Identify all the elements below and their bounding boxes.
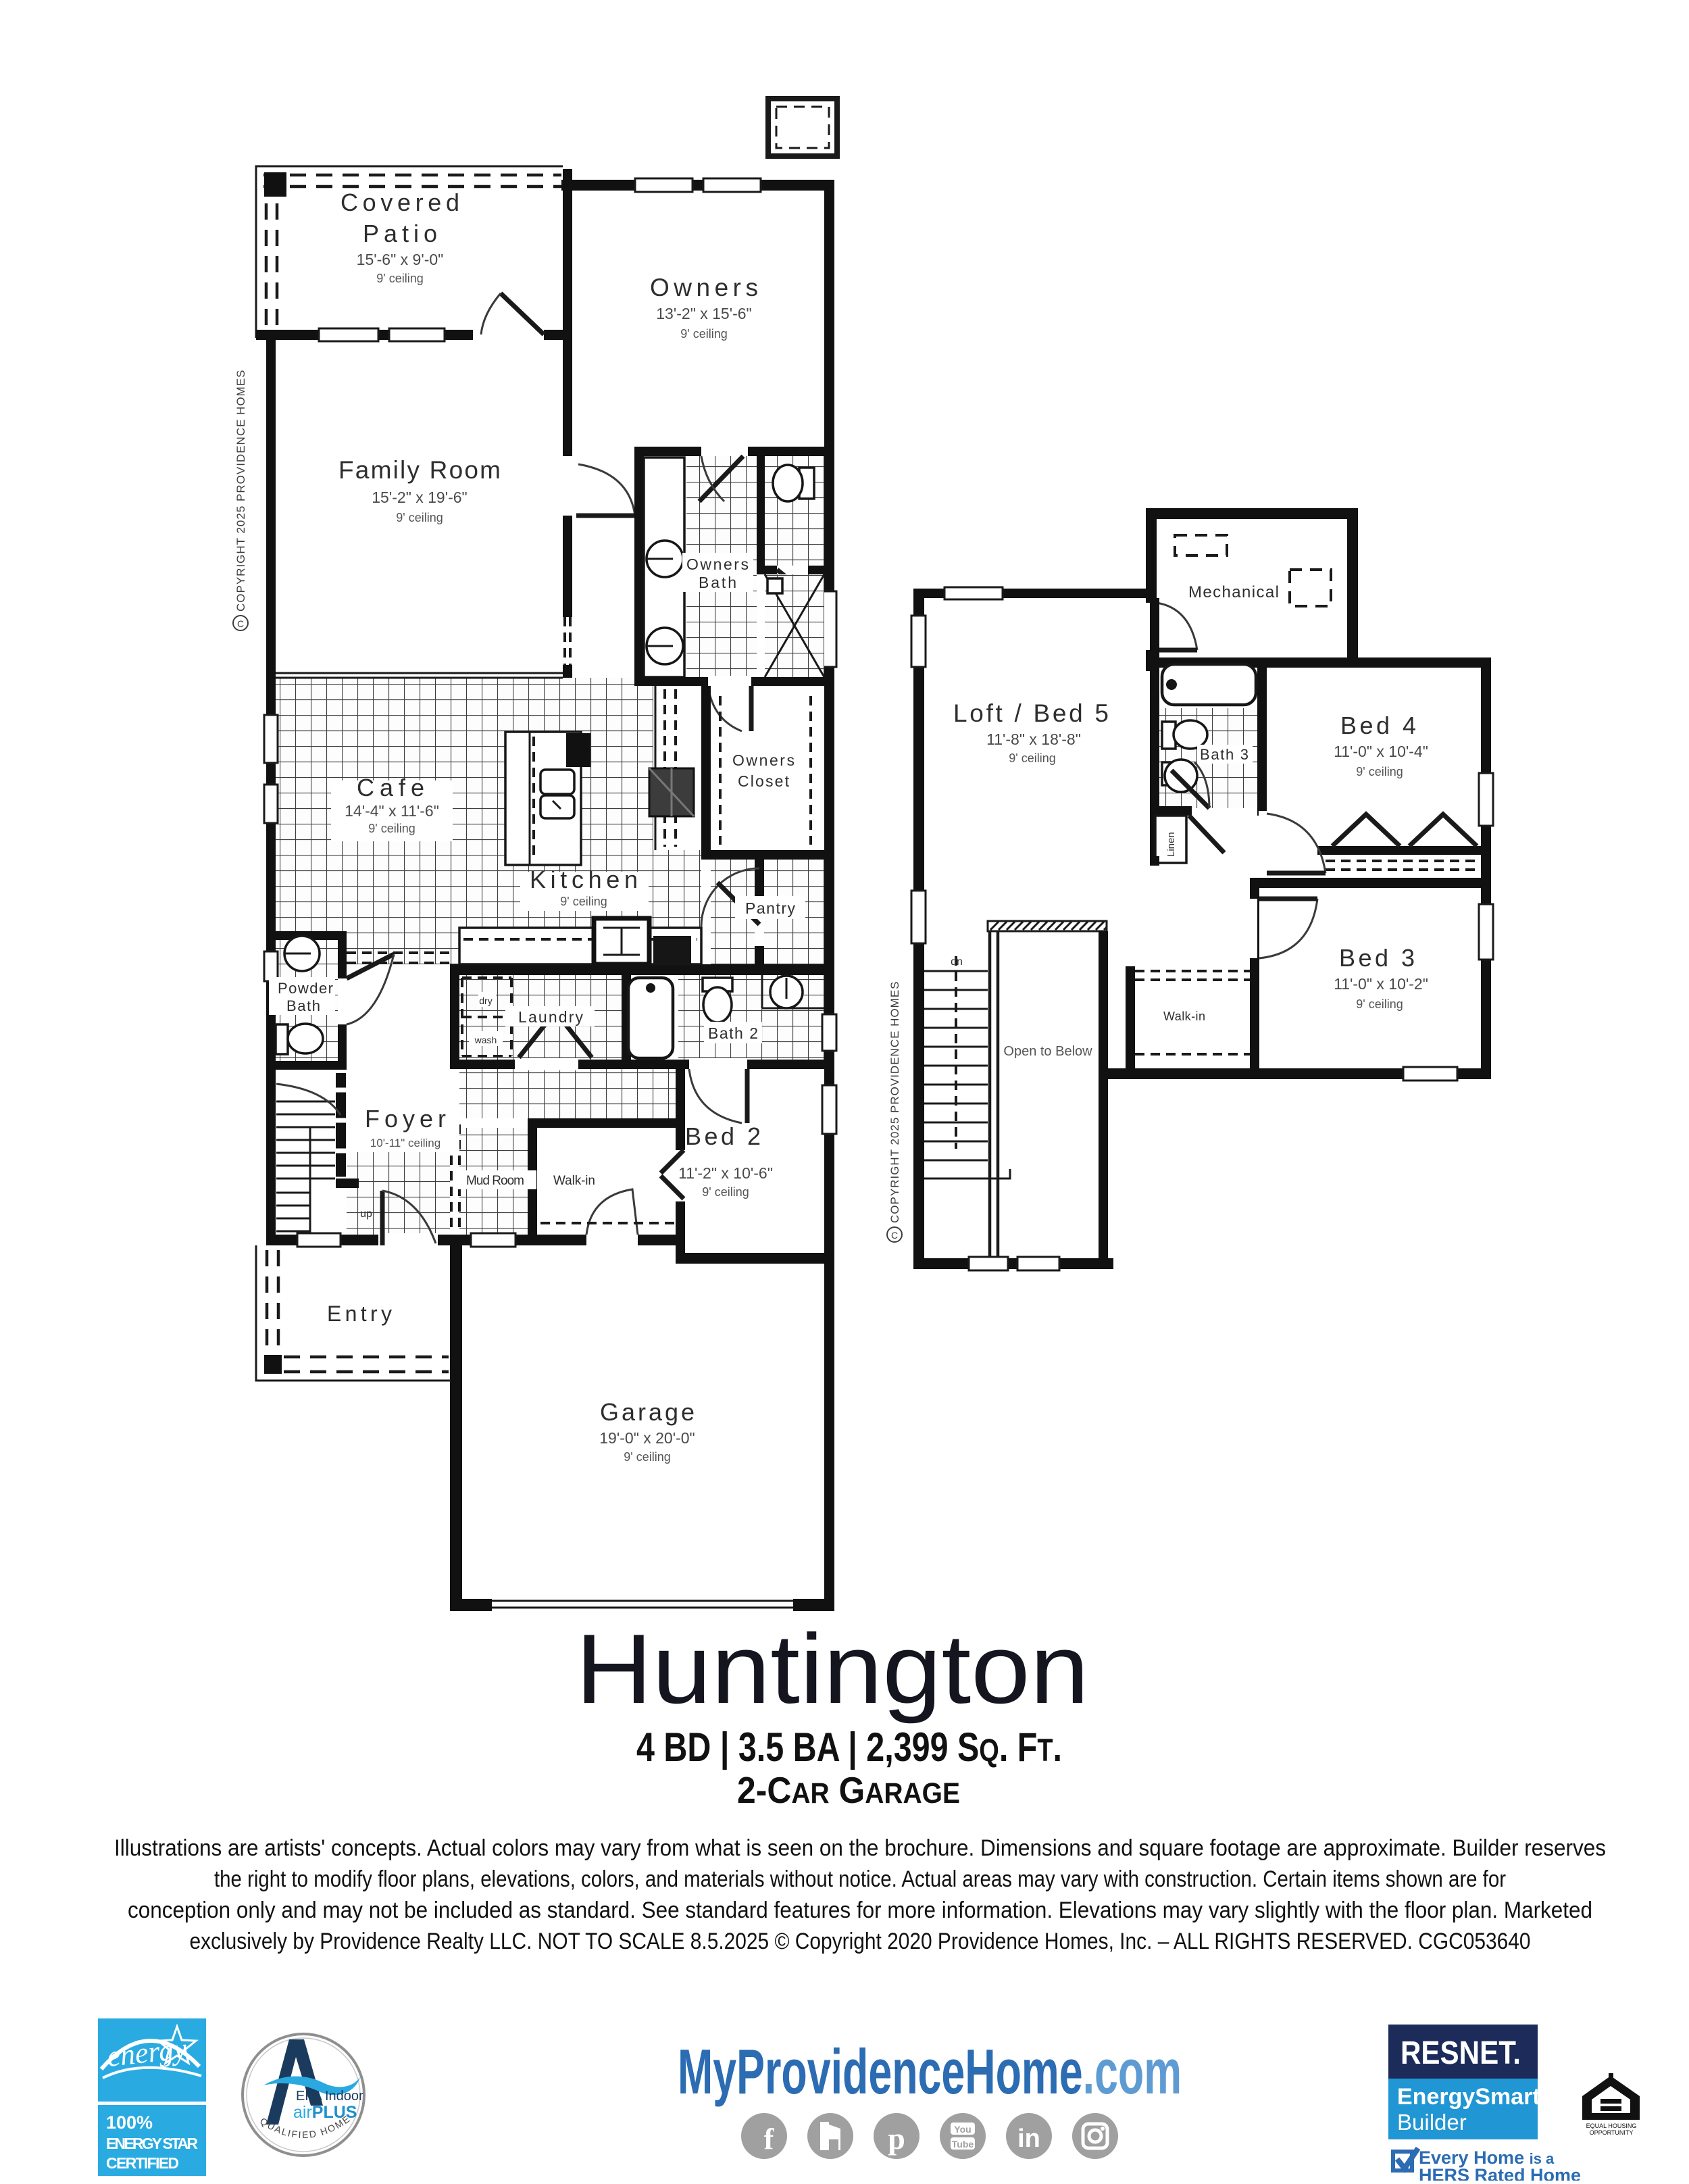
- svg-text:10'-11" ceiling: 10'-11" ceiling: [370, 1137, 440, 1149]
- svg-text:Closet: Closet: [738, 772, 790, 790]
- svg-text:9' ceiling: 9' ceiling: [1009, 751, 1055, 765]
- svg-text:conception only and may not be: conception only and may not be included …: [128, 1897, 1592, 1923]
- svg-text:14'-4" x 11'-6": 14'-4" x 11'-6": [345, 802, 439, 820]
- svg-text:HERS Rated Home: HERS Rated Home: [1419, 2165, 1581, 2181]
- svg-text:9' ceiling: 9' ceiling: [680, 327, 727, 341]
- svg-text:9' ceiling: 9' ceiling: [396, 511, 443, 524]
- svg-text:exclusively by Providence Real: exclusively by Providence Realty LLC. NO…: [190, 1929, 1531, 1954]
- svg-text:You: You: [954, 2124, 971, 2135]
- svg-text:COPYRIGHT 2025 PROVIDENCE HOME: COPYRIGHT 2025 PROVIDENCE HOMES: [234, 370, 247, 612]
- svg-text:Bath: Bath: [286, 997, 320, 1014]
- svg-text:Walk-in: Walk-in: [1163, 1010, 1205, 1023]
- svg-text:11'-2" x 10'-6": 11'-2" x 10'-6": [678, 1164, 773, 1182]
- svg-text:CERTIFIED: CERTIFIED: [106, 2154, 179, 2172]
- svg-text:9' ceiling: 9' ceiling: [376, 272, 423, 285]
- svg-text:Huntington: Huntington: [576, 1614, 1089, 1724]
- svg-text:Bed 4: Bed 4: [1340, 712, 1416, 739]
- svg-text:9' ceiling: 9' ceiling: [624, 1450, 670, 1464]
- svg-text:Mud Room: Mud Room: [466, 1174, 524, 1188]
- svg-text:15'-6" x 9'-0": 15'-6" x 9'-0": [357, 251, 444, 268]
- svg-text:Builder: Builder: [1397, 2110, 1467, 2135]
- svg-text:100%: 100%: [106, 2112, 153, 2133]
- svg-text:11'-0" x 10'-2": 11'-0" x 10'-2": [1334, 975, 1428, 993]
- svg-text:EnergySmart: EnergySmart: [1397, 2084, 1540, 2110]
- svg-text:wash: wash: [474, 1035, 497, 1045]
- svg-text:Bed 3: Bed 3: [1339, 944, 1415, 972]
- svg-text:EQUAL HOUSING: EQUAL HOUSING: [1586, 2123, 1637, 2129]
- svg-text:ENERGY STAR: ENERGY STAR: [106, 2135, 198, 2152]
- svg-text:in: in: [1017, 2125, 1040, 2153]
- svg-text:15'-2" x 19'-6": 15'-2" x 19'-6": [372, 489, 467, 506]
- svg-text:Tube: Tube: [952, 2139, 974, 2150]
- svg-text:COPYRIGHT 2025 PROVIDENCE HOME: COPYRIGHT 2025 PROVIDENCE HOMES: [888, 981, 901, 1224]
- svg-text:Illustrations are artists' con: Illustrations are artists' concepts. Act…: [114, 1835, 1606, 1861]
- svg-text:dry: dry: [479, 995, 492, 1006]
- svg-text:9' ceiling: 9' ceiling: [368, 822, 415, 835]
- svg-text:C: C: [237, 618, 244, 629]
- svg-text:13'-2" x 15'-6": 13'-2" x 15'-6": [656, 305, 751, 322]
- svg-text:Bath 2: Bath 2: [708, 1024, 758, 1042]
- svg-text:the right to modify floor plan: the right to modify floor plans, elevati…: [214, 1866, 1506, 1892]
- svg-text:Walk-in: Walk-in: [553, 1174, 595, 1188]
- svg-text:dn: dn: [951, 956, 963, 968]
- svg-text:4 BD | 3.5 BA | 2,399 SQ. FT.: 4 BD | 3.5 BA | 2,399 SQ. FT.: [636, 1724, 1062, 1770]
- svg-text:Pantry: Pantry: [745, 899, 796, 917]
- svg-text:MyProvidenceHome.com: MyProvidenceHome.com: [678, 2036, 1182, 2107]
- svg-text:9' ceiling: 9' ceiling: [1356, 997, 1403, 1011]
- svg-text:p: p: [888, 2121, 905, 2156]
- svg-text:Cafe: Cafe: [357, 774, 424, 801]
- svg-text:19'-0" x 20'-0": 19'-0" x 20'-0": [599, 1429, 695, 1447]
- svg-text:9' ceiling: 9' ceiling: [702, 1185, 749, 1199]
- svg-text:9' ceiling: 9' ceiling: [1356, 765, 1403, 778]
- svg-text:up: up: [360, 1208, 372, 1220]
- svg-text:EPA Indoor: EPA Indoor: [296, 2089, 363, 2104]
- svg-text:11'-0" x 10'-4": 11'-0" x 10'-4": [1334, 743, 1428, 760]
- svg-text:Bed 2: Bed 2: [685, 1122, 761, 1150]
- svg-text:11'-8" x 18'-8": 11'-8" x 18'-8": [986, 730, 1081, 748]
- svg-text:Linen: Linen: [1165, 832, 1177, 857]
- svg-text:OPPORTUNITY: OPPORTUNITY: [1590, 2129, 1634, 2136]
- svg-text:f: f: [764, 2123, 775, 2156]
- svg-text:Powder: Powder: [278, 980, 333, 997]
- svg-text:Bath 3: Bath 3: [1200, 746, 1249, 763]
- svg-text:RESNET.: RESNET.: [1401, 2035, 1521, 2071]
- svg-text:C: C: [891, 1230, 898, 1241]
- svg-text:Laundry: Laundry: [518, 1008, 584, 1026]
- svg-text:9' ceiling: 9' ceiling: [560, 895, 607, 908]
- svg-text:Open to Below: Open to Below: [1003, 1044, 1092, 1059]
- svg-text:Bath: Bath: [699, 574, 736, 591]
